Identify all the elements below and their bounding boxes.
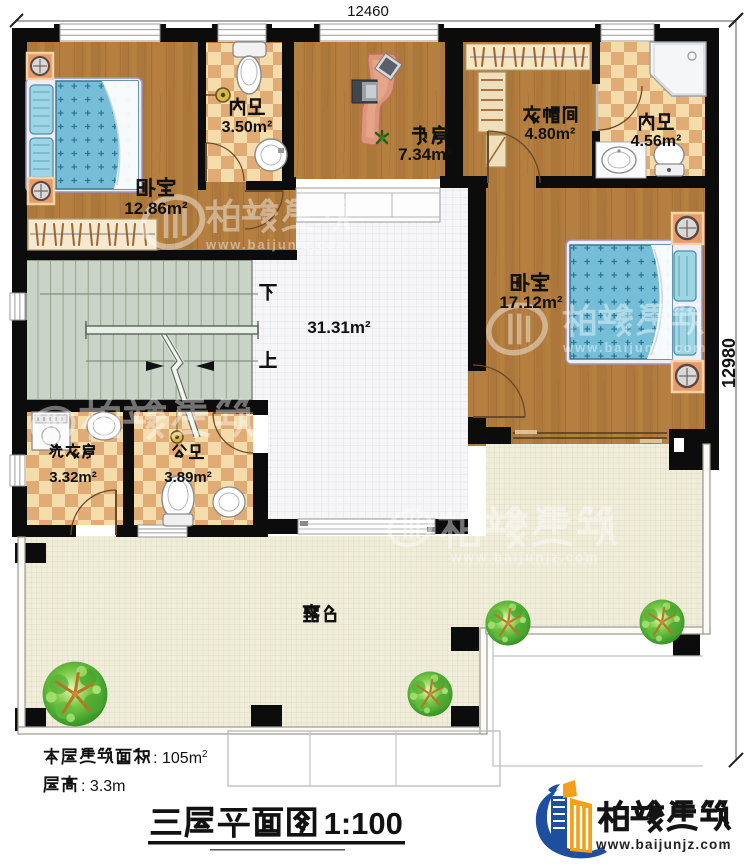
svg-text:17.12m²: 17.12m² [499,293,563,312]
svg-text:4.56m²: 4.56m² [631,133,682,150]
svg-text:www.baijunjz.com: www.baijunjz.com [562,340,707,355]
svg-text:12460: 12460 [347,3,389,20]
svg-text:4.80m²: 4.80m² [525,126,576,143]
svg-text:: 3.3m: : 3.3m [81,778,125,795]
svg-text:7.34m²: 7.34m² [398,145,452,164]
svg-text:www.baijunjz.com: www.baijunjz.com [595,837,732,852]
svg-text:www.baijunjz.com: www.baijunjz.com [205,237,350,252]
svg-text:3.32m²: 3.32m² [49,469,97,486]
svg-text:3.50m²: 3.50m² [222,119,273,136]
svg-text:: 105m2: : 105m2 [153,749,208,767]
svg-text:1:100: 1:100 [324,806,403,841]
svg-text:www.baijunjz.com: www.baijunjz.com [450,550,600,565]
svg-text:12.86m²: 12.86m² [124,199,188,218]
svg-text:31.31m²: 31.31m² [307,318,371,337]
svg-text:3.89m²: 3.89m² [164,469,212,486]
svg-text:12980: 12980 [719,338,739,388]
